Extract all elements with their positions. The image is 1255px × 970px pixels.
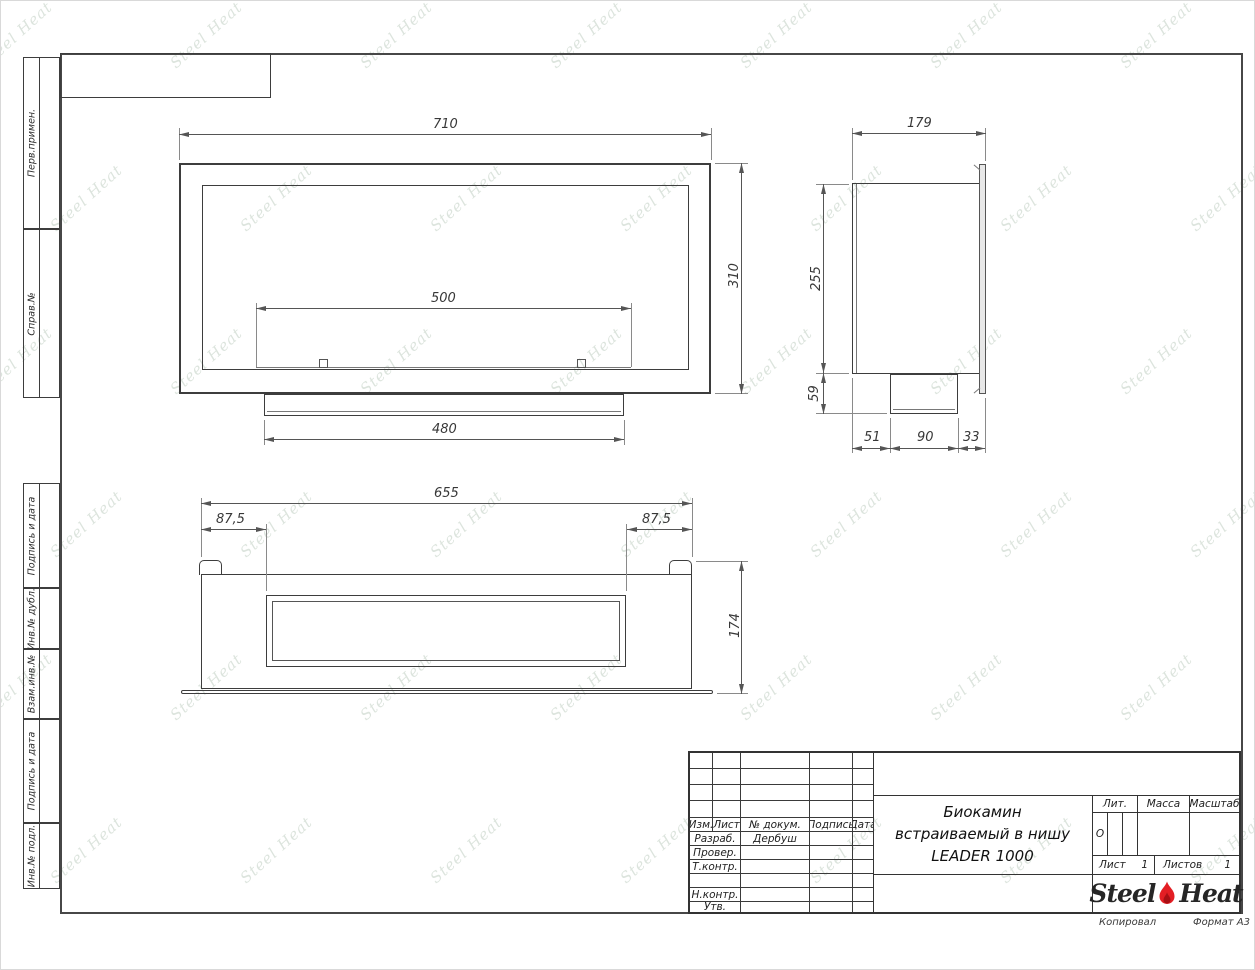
dim-top-offset-left: 87,5 — [216, 512, 245, 527]
lit-value-cell: О — [1093, 813, 1108, 856]
designation-cell — [873, 753, 1239, 796]
dim-side-tank-height: 59 — [807, 385, 822, 402]
dim-line-side-seg3 — [958, 448, 985, 449]
front-clip-left — [319, 359, 328, 368]
margin-box-podpis-data-2: Подпись и дата — [23, 719, 60, 823]
watermark-text: Steel Heat — [617, 813, 696, 887]
listov-value: 1 — [1224, 859, 1231, 871]
margin-box-vzam-inv: Взам.инв.№ — [23, 649, 60, 719]
document-title: Биокамин встраиваемый в нишу LEADER 1000 — [895, 802, 1070, 867]
dim-top-depth: 174 — [728, 613, 743, 638]
dim-front-burner: 500 — [431, 291, 456, 306]
margin-label: Взам.инв.№ — [27, 655, 38, 713]
dim-line-top-offset-left — [201, 529, 266, 530]
watermark-text: Steel Heat — [997, 487, 1076, 561]
watermark-text: Steel Heat — [997, 161, 1076, 235]
dim-line-side-depth — [852, 133, 986, 134]
list-label: Лист — [1099, 859, 1126, 871]
margin-label: Подпись и дата — [27, 496, 38, 575]
row-utv-label: Утв. — [690, 902, 741, 912]
dim-line-front-tray — [264, 439, 624, 440]
list-cell: Лист 1 — [1093, 856, 1155, 875]
dim-side-seg1: 51 — [864, 430, 881, 445]
list-value: 1 — [1141, 859, 1148, 871]
watermark-text: Steel Heat — [1117, 0, 1196, 72]
dim-line-front-width — [179, 134, 711, 135]
company-cell — [873, 875, 1093, 912]
front-tray-innerline — [267, 411, 621, 412]
dim-side-depth: 179 — [907, 116, 932, 131]
dim-front-width: 710 — [433, 117, 458, 132]
margin-label: Перв.примен. — [27, 109, 38, 177]
watermark-text: Steel Heat — [1187, 487, 1255, 561]
row-prover-label: Провер. — [690, 846, 741, 860]
dim-line-top-offset-right — [627, 529, 692, 530]
row-razrab-label: Разраб. — [690, 832, 741, 846]
col-header-data: Дата — [853, 818, 873, 832]
listov-cell: Листов 1 — [1155, 856, 1239, 875]
watermark-text: Steel Heat — [1187, 161, 1255, 235]
row-tkontr-label: Т.контр. — [690, 860, 741, 874]
dim-top-width: 655 — [434, 486, 459, 501]
watermark-text: Steel Heat — [807, 487, 886, 561]
title-cell: Биокамин встраиваемый в нишу LEADER 1000 — [873, 796, 1093, 875]
masshtab-header: Масштаб — [1190, 796, 1239, 813]
lit-header: Лит. — [1093, 796, 1138, 813]
margin-label: Инв.№ дубл. — [27, 588, 38, 650]
side-tank-outline — [890, 374, 958, 414]
listov-label: Листов — [1163, 859, 1202, 871]
side-glass-line — [856, 184, 857, 373]
margin-box-podpis-data-1: Подпись и дата — [23, 483, 60, 588]
watermark-text: Steel Heat — [357, 0, 436, 72]
logo-cell: Steel Heat — [1093, 875, 1239, 912]
front-burner-ledge — [256, 367, 631, 368]
dim-line-front-burner — [256, 308, 631, 309]
margin-label: Подпись и дата — [27, 732, 38, 811]
copied-label: Копировал — [1099, 917, 1156, 928]
dim-front-height: 310 — [727, 263, 742, 288]
top-burner-frame-inner — [272, 601, 620, 661]
watermark-text: Steel Heat — [237, 487, 316, 561]
dim-front-tray: 480 — [432, 422, 457, 437]
frame-left — [60, 53, 62, 914]
top-clip-right — [669, 560, 692, 575]
margin-box-inv-podl: Инв.№ подл. — [23, 823, 60, 889]
dim-line-side-tank-height — [823, 373, 824, 414]
drawing-sheet: Steel HeatSteel HeatSteel HeatSteel Heat… — [0, 0, 1255, 970]
watermark-text: Steel Heat — [547, 0, 626, 72]
flame-icon — [1157, 880, 1177, 908]
logo-steel: Steel — [1089, 879, 1155, 908]
dim-side-seg2: 90 — [917, 430, 934, 445]
watermark-text: Steel Heat — [737, 324, 816, 398]
col-header-ndokum: № докум. — [741, 818, 810, 832]
title-block: Изм. Лист № докум. Подпись Дата Разраб. … — [688, 751, 1241, 914]
title-line-1: Биокамин — [895, 802, 1070, 824]
top-front-flange — [181, 690, 713, 694]
dim-top-offset-right: 87,5 — [642, 512, 671, 527]
margin-label: Справ.№ — [27, 292, 38, 335]
margin-box-perv-primen: Перв.примен. — [23, 57, 60, 229]
watermark-text: Steel Heat — [737, 0, 816, 72]
masshtab-value-cell — [1190, 813, 1239, 856]
col-header-podpis: Подпись — [810, 818, 853, 832]
dim-side-seg3: 33 — [963, 430, 980, 445]
watermark-text: Steel Heat — [1117, 650, 1196, 724]
logo-heat: Heat — [1179, 879, 1242, 908]
watermark-text: Steel Heat — [237, 813, 316, 887]
margin-box-sprav-n: Справ.№ — [23, 229, 60, 398]
watermark-text: Steel Heat — [427, 813, 506, 887]
watermark-text: Steel Heat — [927, 650, 1006, 724]
col-header-izm: Изм. — [690, 818, 713, 832]
watermark-text: Steel Heat — [927, 0, 1006, 72]
title-line-2: встраиваемый в нишу — [895, 824, 1070, 846]
side-tank-innerline — [893, 409, 955, 410]
format-label: Формат А3 — [1193, 917, 1250, 928]
top-stamp-box — [60, 53, 271, 98]
front-tray-outline — [264, 394, 624, 416]
title-line-3: LEADER 1000 — [895, 846, 1070, 868]
row-nkontr-label: Н.контр. — [690, 888, 741, 902]
massa-header: Масса — [1138, 796, 1190, 813]
top-clip-left — [199, 560, 222, 575]
frame-right — [1241, 53, 1243, 914]
margin-box-inv-dubl: Инв.№ дубл. — [23, 588, 60, 649]
front-clip-right — [577, 359, 586, 368]
margin-label: Инв.№ подл. — [27, 825, 38, 888]
side-body-outline — [852, 183, 981, 374]
side-wall-flange — [979, 164, 986, 394]
row-razrab-value: Дербуш — [741, 832, 810, 846]
dim-line-top-width — [201, 503, 692, 504]
title-block-left-table: Изм. Лист № докум. Подпись Дата Разраб. … — [690, 753, 874, 912]
col-header-list: Лист — [713, 818, 741, 832]
massa-value-cell — [1138, 813, 1190, 856]
dim-side-body-height: 255 — [809, 266, 824, 291]
dim-line-side-seg2 — [890, 448, 958, 449]
dim-line-side-seg1 — [852, 448, 890, 449]
front-glass-outline — [202, 185, 689, 370]
watermark-text: Steel Heat — [1117, 324, 1196, 398]
watermark-text: Steel Heat — [737, 650, 816, 724]
